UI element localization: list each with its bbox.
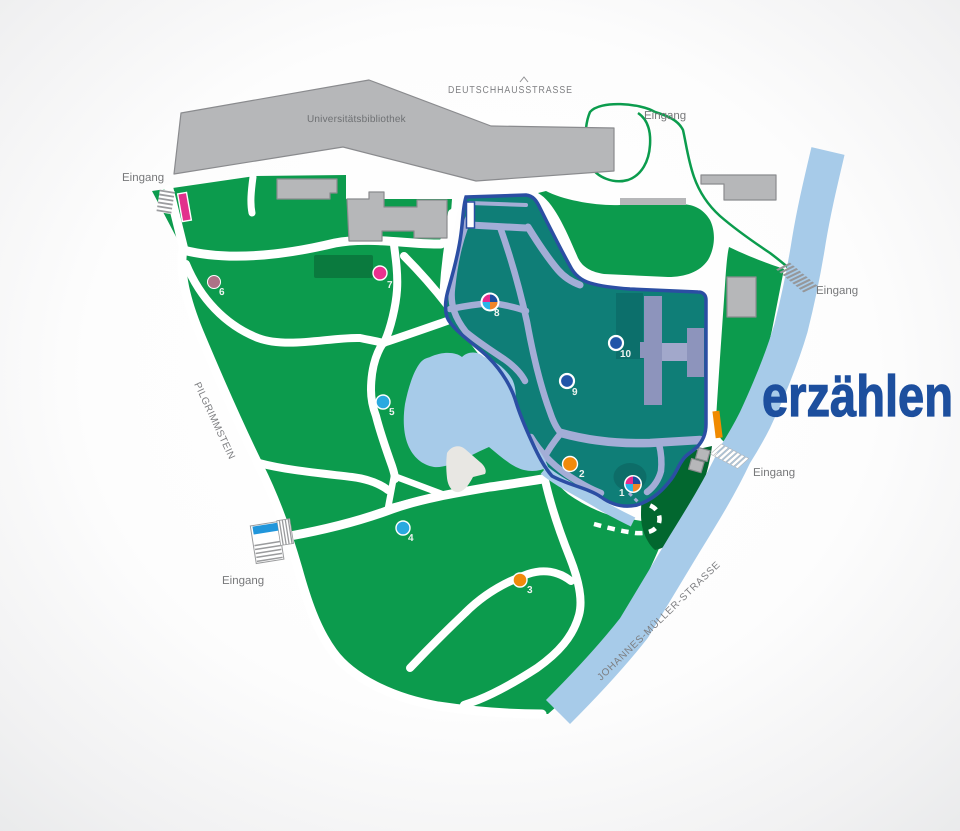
svg-text:DEUTSCHHAUSSTRASSE: DEUTSCHHAUSSTRASSE — [448, 85, 573, 96]
svg-text:9: 9 — [572, 387, 578, 398]
svg-text:3: 3 — [527, 585, 533, 596]
svg-text:7: 7 — [387, 280, 393, 291]
svg-text:erzählen: erzählen — [762, 364, 953, 429]
svg-text:Eingang: Eingang — [222, 575, 264, 587]
svg-text:4: 4 — [408, 533, 414, 544]
svg-text:8: 8 — [494, 308, 500, 319]
svg-text:1: 1 — [619, 488, 625, 499]
svg-text:Universitätsbibliothek: Universitätsbibliothek — [307, 114, 407, 125]
svg-text:6: 6 — [219, 287, 225, 298]
svg-text:Eingang: Eingang — [122, 172, 164, 184]
svg-text:Eingang: Eingang — [816, 285, 858, 297]
svg-text:5: 5 — [389, 407, 395, 418]
svg-text:Eingang: Eingang — [644, 110, 686, 122]
svg-text:2: 2 — [579, 469, 585, 480]
svg-text:10: 10 — [620, 349, 632, 360]
svg-text:Eingang: Eingang — [753, 467, 795, 479]
